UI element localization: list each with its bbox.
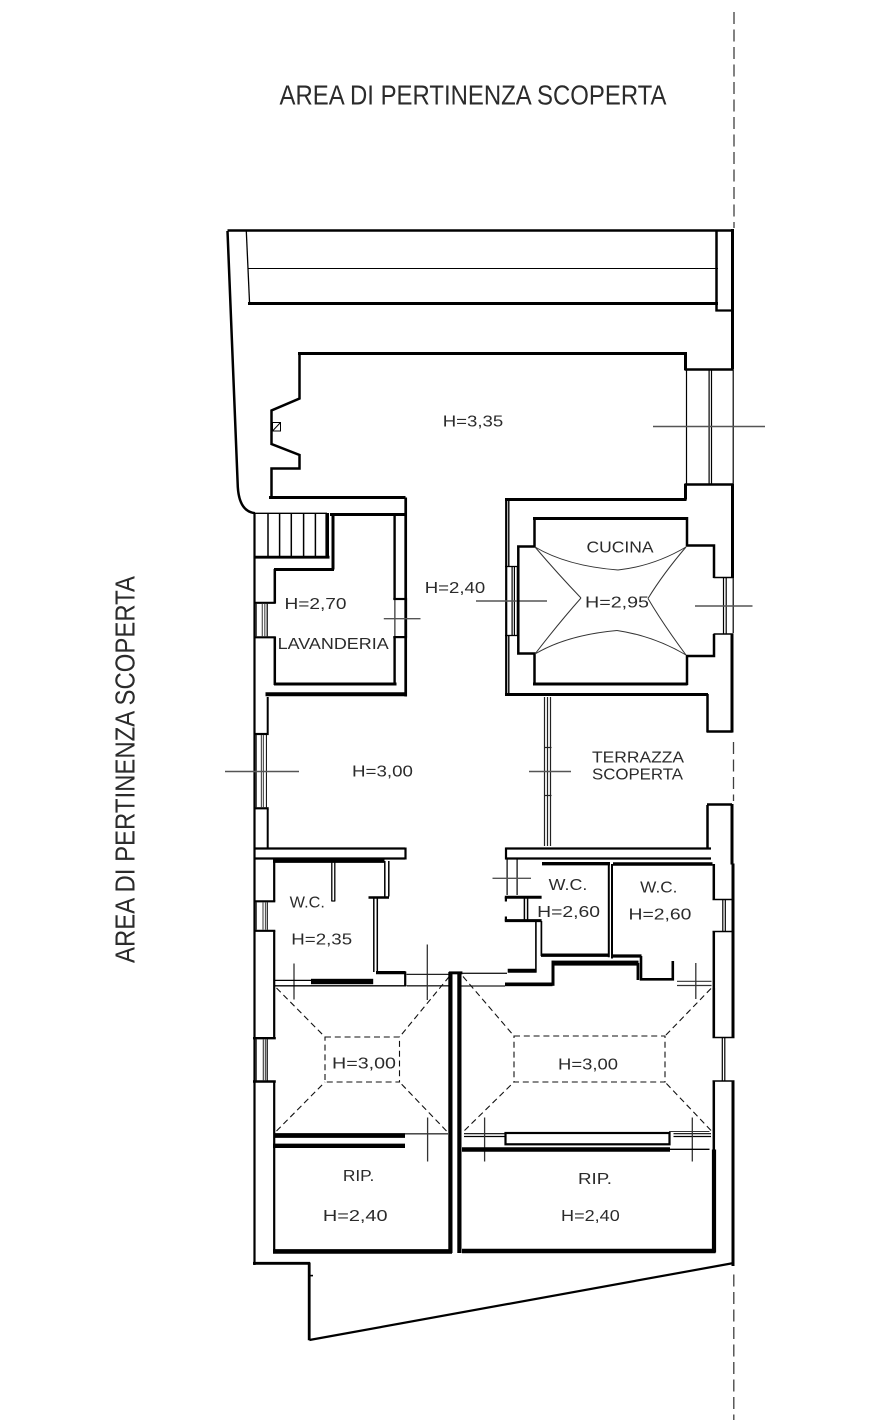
svg-text:SCOPERTA: SCOPERTA xyxy=(592,767,684,784)
svg-text:W.C.: W.C. xyxy=(290,895,325,912)
svg-text:H=2,60: H=2,60 xyxy=(629,906,692,923)
svg-text:AREA DI PERTINENZA SCOPERTA: AREA DI PERTINENZA SCOPERTA xyxy=(280,79,667,110)
svg-text:H=3,35: H=3,35 xyxy=(443,413,504,430)
svg-text:H=2,70: H=2,70 xyxy=(285,596,347,613)
svg-text:W.C.: W.C. xyxy=(640,880,677,897)
svg-text:AREA DI PERTINENZA SCOPERTA: AREA DI PERTINENZA SCOPERTA xyxy=(110,576,141,963)
svg-text:H=2,35: H=2,35 xyxy=(291,931,352,948)
svg-text:H=2,40: H=2,40 xyxy=(323,1208,388,1225)
svg-text:W.C.: W.C. xyxy=(549,877,588,894)
svg-text:H=2,40: H=2,40 xyxy=(561,1208,620,1225)
svg-text:H=2,60: H=2,60 xyxy=(537,904,600,921)
svg-text:RIP.: RIP. xyxy=(578,1171,612,1188)
svg-text:LAVANDERIA: LAVANDERIA xyxy=(278,636,390,653)
svg-text:H=3,00: H=3,00 xyxy=(558,1057,618,1074)
svg-text:H=2,40: H=2,40 xyxy=(425,580,486,597)
svg-text:H=3,00: H=3,00 xyxy=(352,763,413,780)
svg-text:RIP.: RIP. xyxy=(343,1168,375,1185)
svg-text:H=2,95: H=2,95 xyxy=(585,594,649,611)
svg-text:TERRAZZA: TERRAZZA xyxy=(592,749,685,766)
svg-text:CUCINA: CUCINA xyxy=(587,539,655,556)
svg-text:H=3,00: H=3,00 xyxy=(332,1055,396,1072)
